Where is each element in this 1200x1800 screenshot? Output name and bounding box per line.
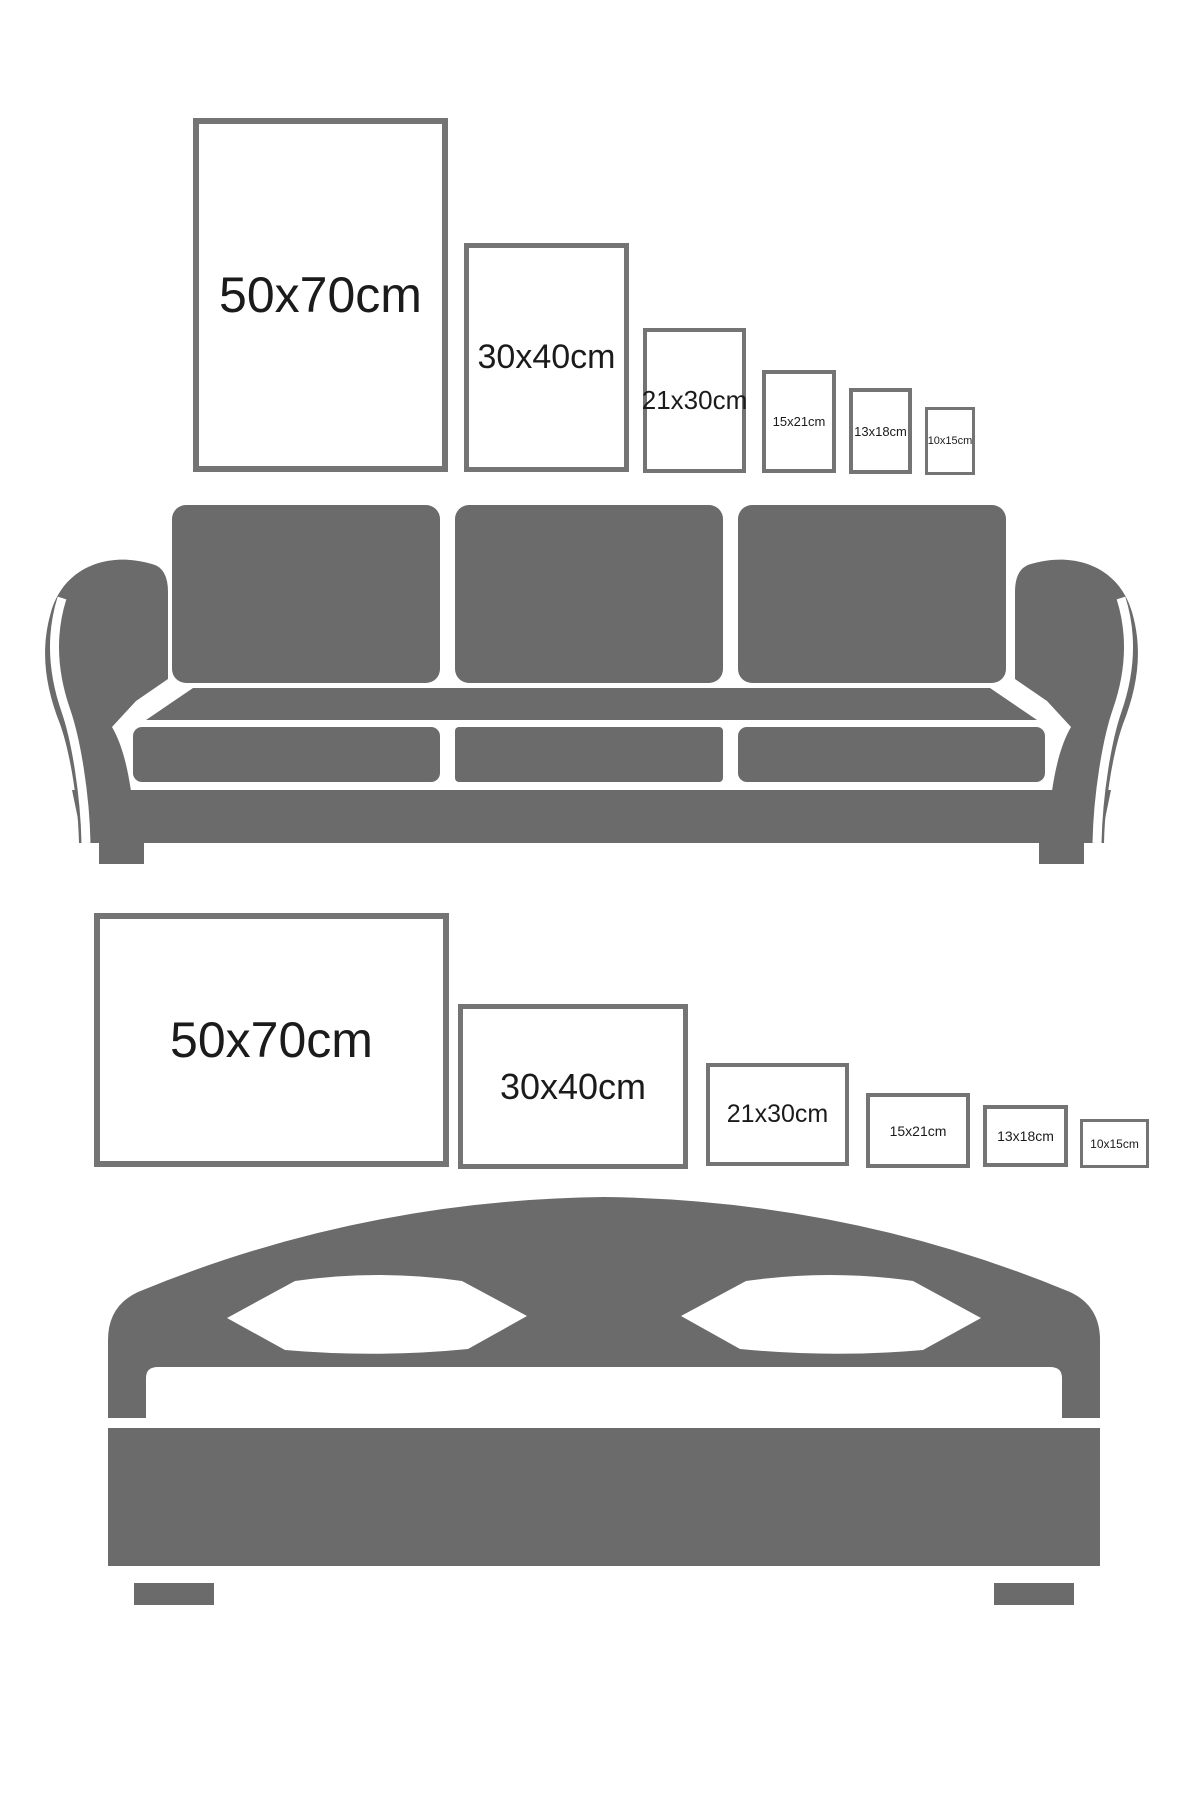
frame-size-label: 10x15cm: [1090, 1137, 1139, 1151]
frame-landscape-30x40cm: 30x40cm: [458, 1004, 688, 1169]
frame-landscape-10x15cm: 10x15cm: [1080, 1119, 1149, 1168]
poster-size-guide: 50x70cm30x40cm21x30cm15x21cm13x18cm10x15…: [0, 0, 1200, 1800]
frame-size-label: 13x18cm: [997, 1128, 1054, 1144]
frame-size-label: 15x21cm: [890, 1123, 947, 1139]
frame-size-label: 50x70cm: [170, 1011, 373, 1069]
frame-landscape-13x18cm: 13x18cm: [983, 1105, 1068, 1167]
frame-size-label: 21x30cm: [727, 1100, 828, 1129]
frame-landscape-21x30cm: 21x30cm: [706, 1063, 849, 1166]
frame-landscape-15x21cm: 15x21cm: [866, 1093, 970, 1168]
frame-size-label: 30x40cm: [500, 1066, 646, 1108]
frame-landscape-50x70cm: 50x70cm: [94, 913, 449, 1167]
frames-row-landscape: 50x70cm30x40cm21x30cm15x21cm13x18cm10x15…: [0, 0, 1200, 1800]
